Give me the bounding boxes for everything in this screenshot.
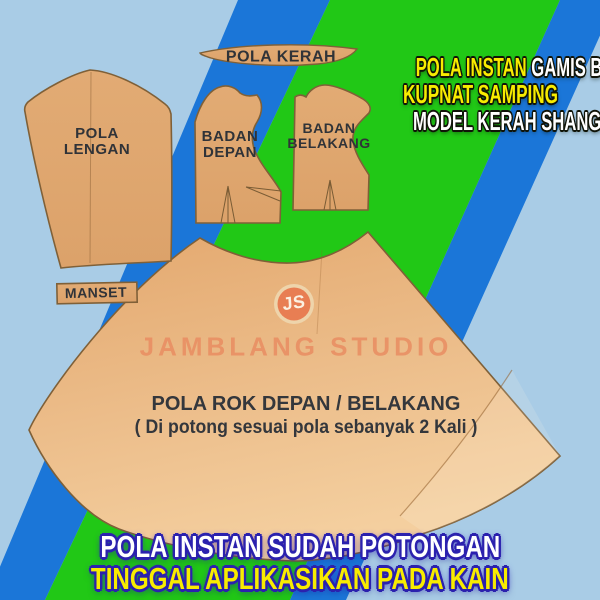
footer-banner: POLA INSTAN SUDAH POTONGAN TINGGAL APLIK… [0, 531, 600, 595]
sleeve-label-line1: POLA [64, 126, 130, 142]
sleeve-label: POLA LENGAN [64, 126, 130, 158]
studio-name-watermark: JAMBLANG STUDIO [140, 332, 453, 363]
cuff-label: MANSET [65, 285, 127, 301]
collar-label: POLA KERAH [226, 48, 336, 65]
headline-line2: KUPNAT SAMPING [352, 81, 600, 108]
footer-line2: TINGGAL APLIKASIKAN PADA KAIN [0, 563, 600, 595]
skirt-caption-line2: ( Di potong sesuai pola sebanyak 2 Kali … [135, 416, 478, 439]
jamblang-studio-monogram: JS [282, 291, 306, 315]
front-bodice-label: BADAN DEPAN [202, 129, 259, 161]
footer-line1: POLA INSTAN SUDAH POTONGAN [0, 531, 600, 563]
sleeve-pattern-piece [25, 70, 172, 268]
headline-line1-highlight: POLA INSTAN [416, 52, 527, 82]
skirt-caption: POLA ROK DEPAN / BELAKANG ( Di potong se… [122, 393, 490, 439]
skirt-caption-line1: POLA ROK DEPAN / BELAKANG [122, 393, 490, 416]
headline-line1: POLA INSTAN GAMIS BUSUI [352, 54, 600, 81]
headline-block: POLA INSTAN GAMIS BUSUI KUPNAT SAMPING M… [352, 54, 600, 135]
back-bodice-label-line2: BELAKANG [287, 136, 370, 151]
headline-line3: MODEL KERAH SHANGHAI [352, 108, 600, 135]
headline-line1-rest: GAMIS BUSUI [527, 52, 600, 82]
front-bodice-label-line2: DEPAN [202, 145, 259, 161]
sleeve-label-line2: LENGAN [64, 142, 130, 158]
front-bodice-label-line1: BADAN [202, 129, 259, 145]
promo-image: POLA KERAH POLA LENGAN BADAN DEPAN BADAN… [0, 0, 600, 600]
